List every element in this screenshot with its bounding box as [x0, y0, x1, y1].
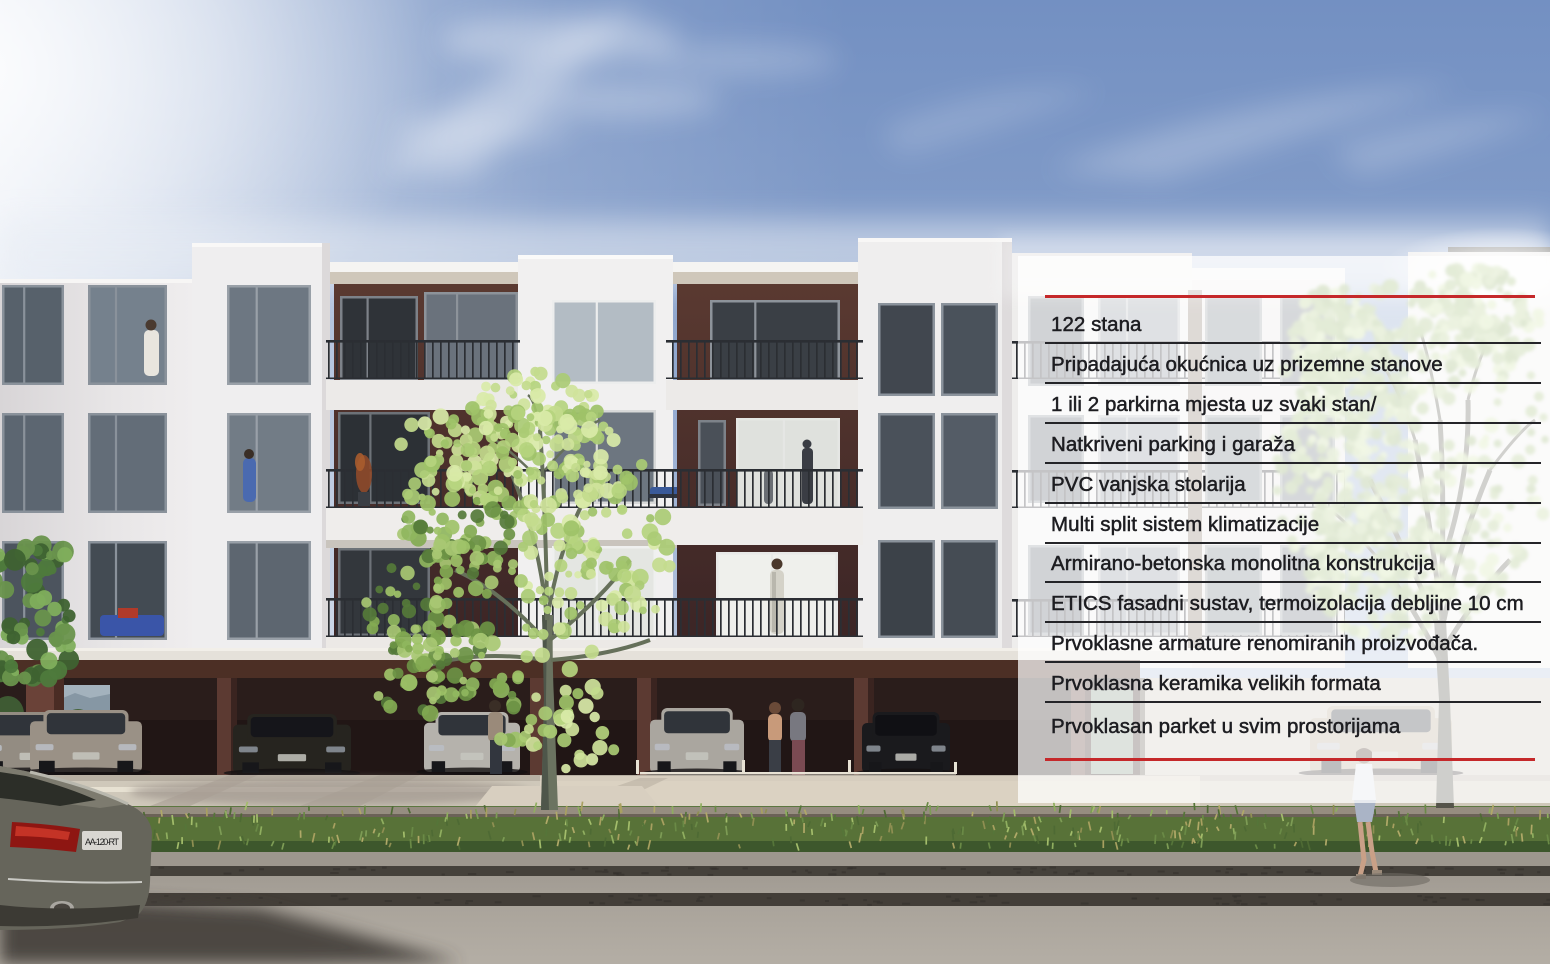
- svg-text:AA-120-RT: AA-120-RT: [85, 837, 120, 847]
